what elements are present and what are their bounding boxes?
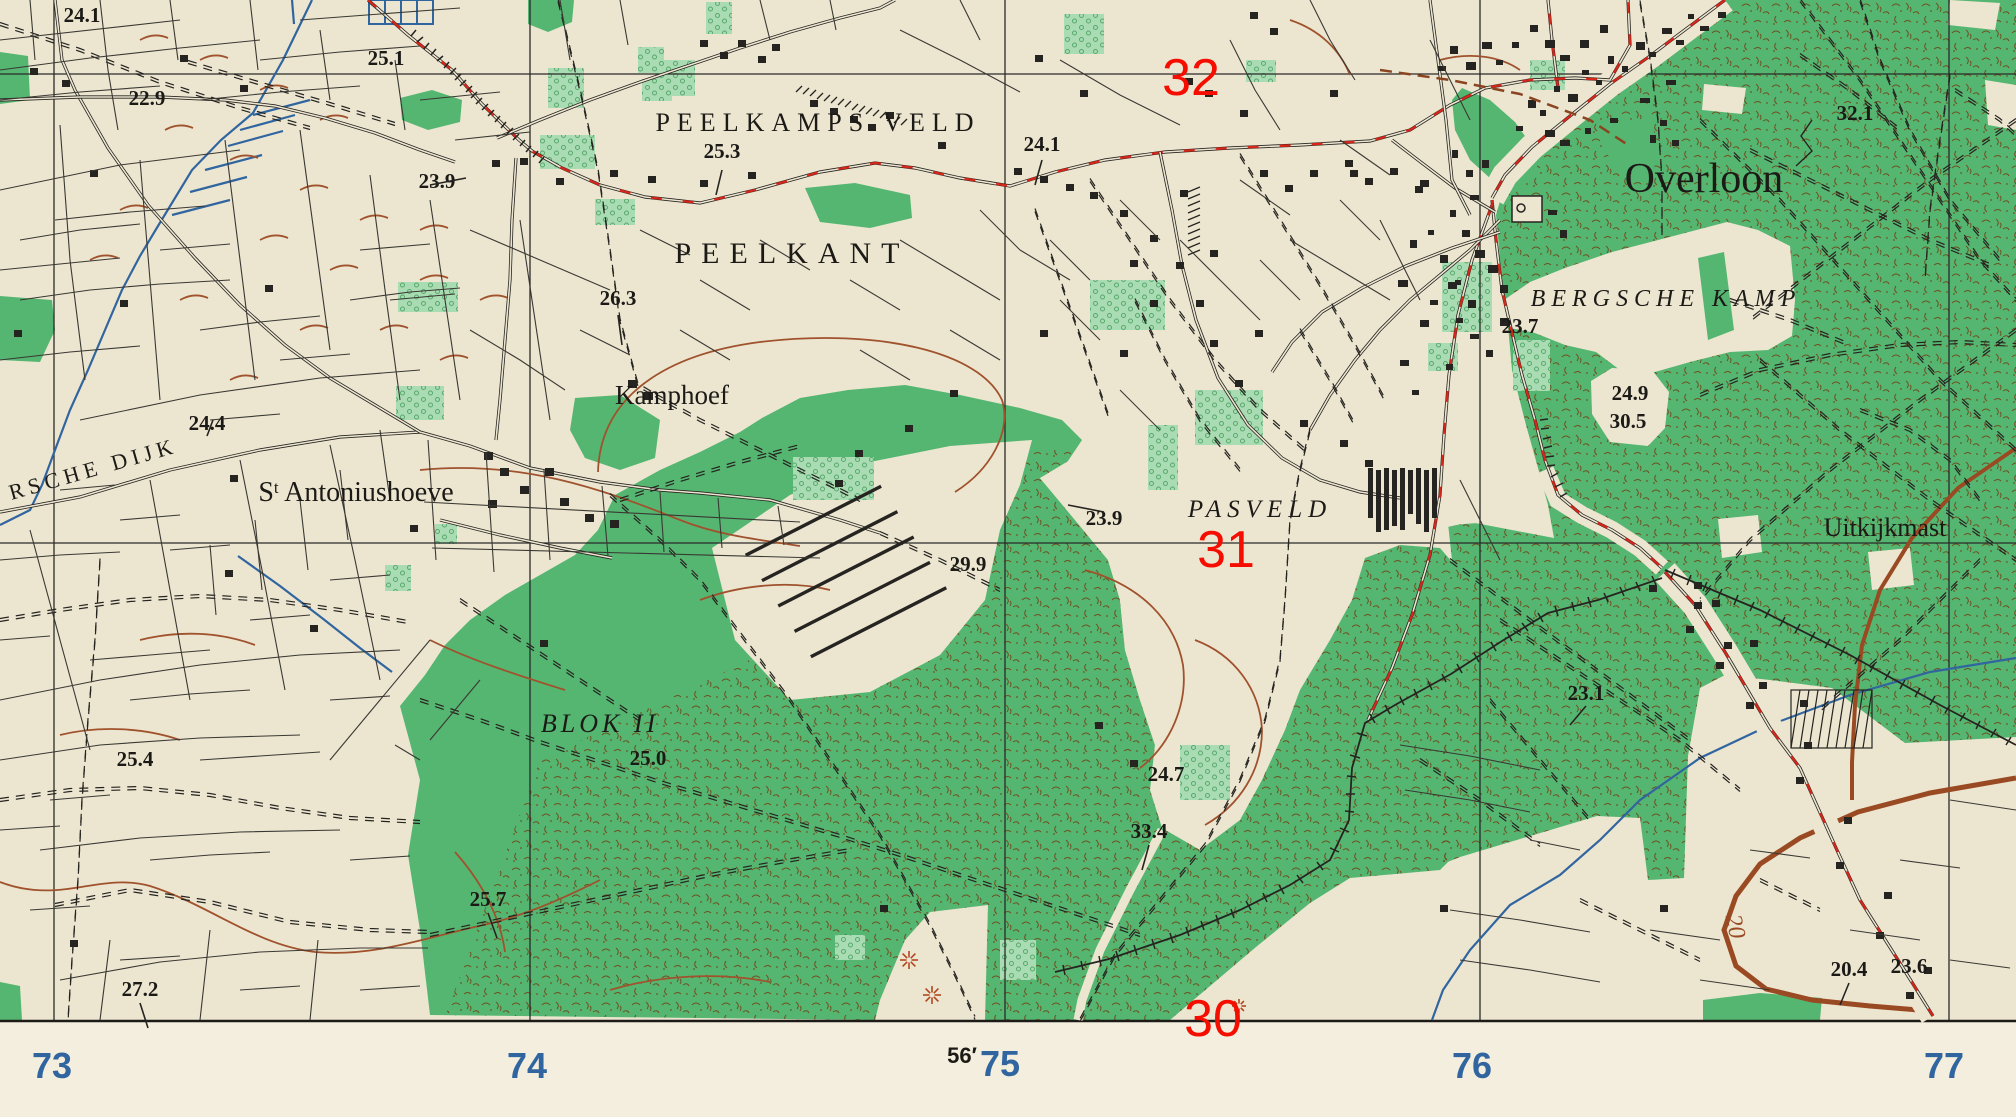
svg-text:29.9: 29.9 (950, 552, 987, 576)
svg-text:31: 31 (1197, 521, 1255, 579)
svg-text:26.3: 26.3 (600, 286, 637, 310)
svg-text:56′: 56′ (947, 1043, 977, 1068)
svg-text:24.9: 24.9 (1612, 381, 1649, 405)
svg-text:32: 32 (1162, 49, 1220, 107)
svg-text:24.7: 24.7 (1148, 762, 1185, 786)
svg-text:75: 75 (980, 1043, 1020, 1084)
svg-text:20.4: 20.4 (1831, 957, 1868, 981)
svg-text:PASVELD: PASVELD (1187, 496, 1332, 523)
svg-text:Kamphoef: Kamphoef (615, 380, 729, 410)
svg-text:St Antoniushoeve: St Antoniushoeve (258, 477, 453, 508)
svg-text:25.0: 25.0 (630, 746, 667, 770)
svg-text:25.4: 25.4 (117, 747, 154, 771)
svg-text:27.2: 27.2 (122, 977, 159, 1001)
svg-text:PEELKAMPS VELD: PEELKAMPS VELD (655, 108, 980, 137)
svg-text:Overloon: Overloon (1625, 156, 1784, 202)
svg-text:25.1: 25.1 (368, 46, 405, 70)
svg-text:Uitkijkmast: Uitkijkmast (1824, 513, 1948, 542)
svg-text:23.1: 23.1 (1568, 681, 1605, 705)
svg-text:33.4: 33.4 (1131, 819, 1168, 843)
svg-text:24.4: 24.4 (189, 411, 226, 435)
svg-text:BERGSCHE KAMP: BERGSCHE KAMP (1531, 286, 1802, 312)
svg-text:76: 76 (1452, 1045, 1492, 1086)
svg-text:30.5: 30.5 (1610, 409, 1647, 433)
svg-text:23.6: 23.6 (1891, 954, 1928, 978)
svg-text:22.9: 22.9 (129, 86, 166, 110)
svg-text:73: 73 (32, 1045, 72, 1086)
svg-text:25.3: 25.3 (704, 139, 741, 163)
svg-text:77: 77 (1924, 1045, 1964, 1086)
svg-text:25.7: 25.7 (470, 887, 507, 911)
svg-text:23.7: 23.7 (1502, 314, 1539, 338)
svg-text:74: 74 (507, 1045, 547, 1086)
svg-text:24.1: 24.1 (64, 3, 101, 27)
svg-text:30: 30 (1184, 990, 1242, 1048)
svg-text:BLOK II: BLOK II (541, 709, 659, 738)
svg-text:24.1: 24.1 (1024, 132, 1061, 156)
svg-text:32.1: 32.1 (1837, 101, 1874, 125)
svg-text:PEELKANT: PEELKANT (675, 237, 910, 270)
